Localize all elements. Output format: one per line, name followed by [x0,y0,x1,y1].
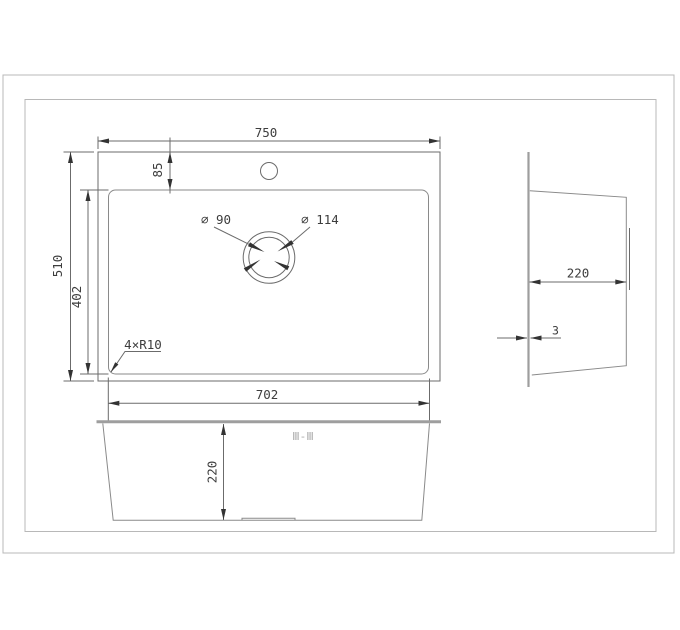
corner-radius-label: 4×R10 [124,337,162,352]
dim-402-extension-lines [80,190,109,374]
dim-702-label: 702 [256,387,279,402]
drain-diameter-label: ⌀ 90 [201,212,231,227]
drain-arrow-upper-right [278,240,294,251]
corner-radius-callout: 4×R10 [111,337,162,373]
drain-hole-circle [249,237,289,277]
outer-frame [3,75,674,553]
corner-radius-arrow [111,362,119,372]
drain-d90-leader [214,227,249,244]
dim-85-label: 85 [150,162,165,177]
dim-510: 510 [50,152,94,381]
section-label: Ⅲ-Ⅲ [292,430,314,443]
top-view: ⌀ 90 ⌀ 114 750 85 510 402 [50,125,440,381]
dim-front-220-label: 220 [205,461,220,484]
dim-750-label: 750 [255,125,278,140]
drain-d114-leader [293,227,311,242]
drain-assembly: ⌀ 90 ⌀ 114 [201,212,339,283]
dim-402-label: 402 [69,286,84,309]
dim-510-label: 510 [50,255,65,278]
dim-side-220: 220 [530,266,627,283]
side-bowl-outline [530,191,627,375]
corner-radius-leader [111,352,161,373]
dim-702: 702 [108,378,429,422]
drawing-border-frame [3,75,674,553]
drain-flange-circle [243,232,295,284]
inner-frame [25,100,656,532]
drain-flange-diameter-label: ⌀ 114 [301,212,339,227]
side-view: 220 3 [497,152,630,387]
dim-402: 402 [69,190,109,374]
sink-technical-drawing: ⌀ 90 ⌀ 114 750 85 510 402 [0,0,680,630]
dim-750: 750 [98,125,440,149]
dim-front-220: 220 [205,424,224,520]
drain-arrow-lower-right [274,261,289,270]
dim-85: 85 [150,138,170,194]
drawing-canvas: ⌀ 90 ⌀ 114 750 85 510 402 [0,0,680,630]
front-bowl-outline [103,423,430,520]
front-section-view: 220 Ⅲ-Ⅲ [97,422,442,521]
dim-510-extension-lines [64,152,95,381]
dim-3-label: 3 [552,324,559,338]
faucet-hole [261,163,278,180]
dim-side-220-label: 220 [567,266,590,281]
drain-arrow-lower-left [244,260,261,272]
